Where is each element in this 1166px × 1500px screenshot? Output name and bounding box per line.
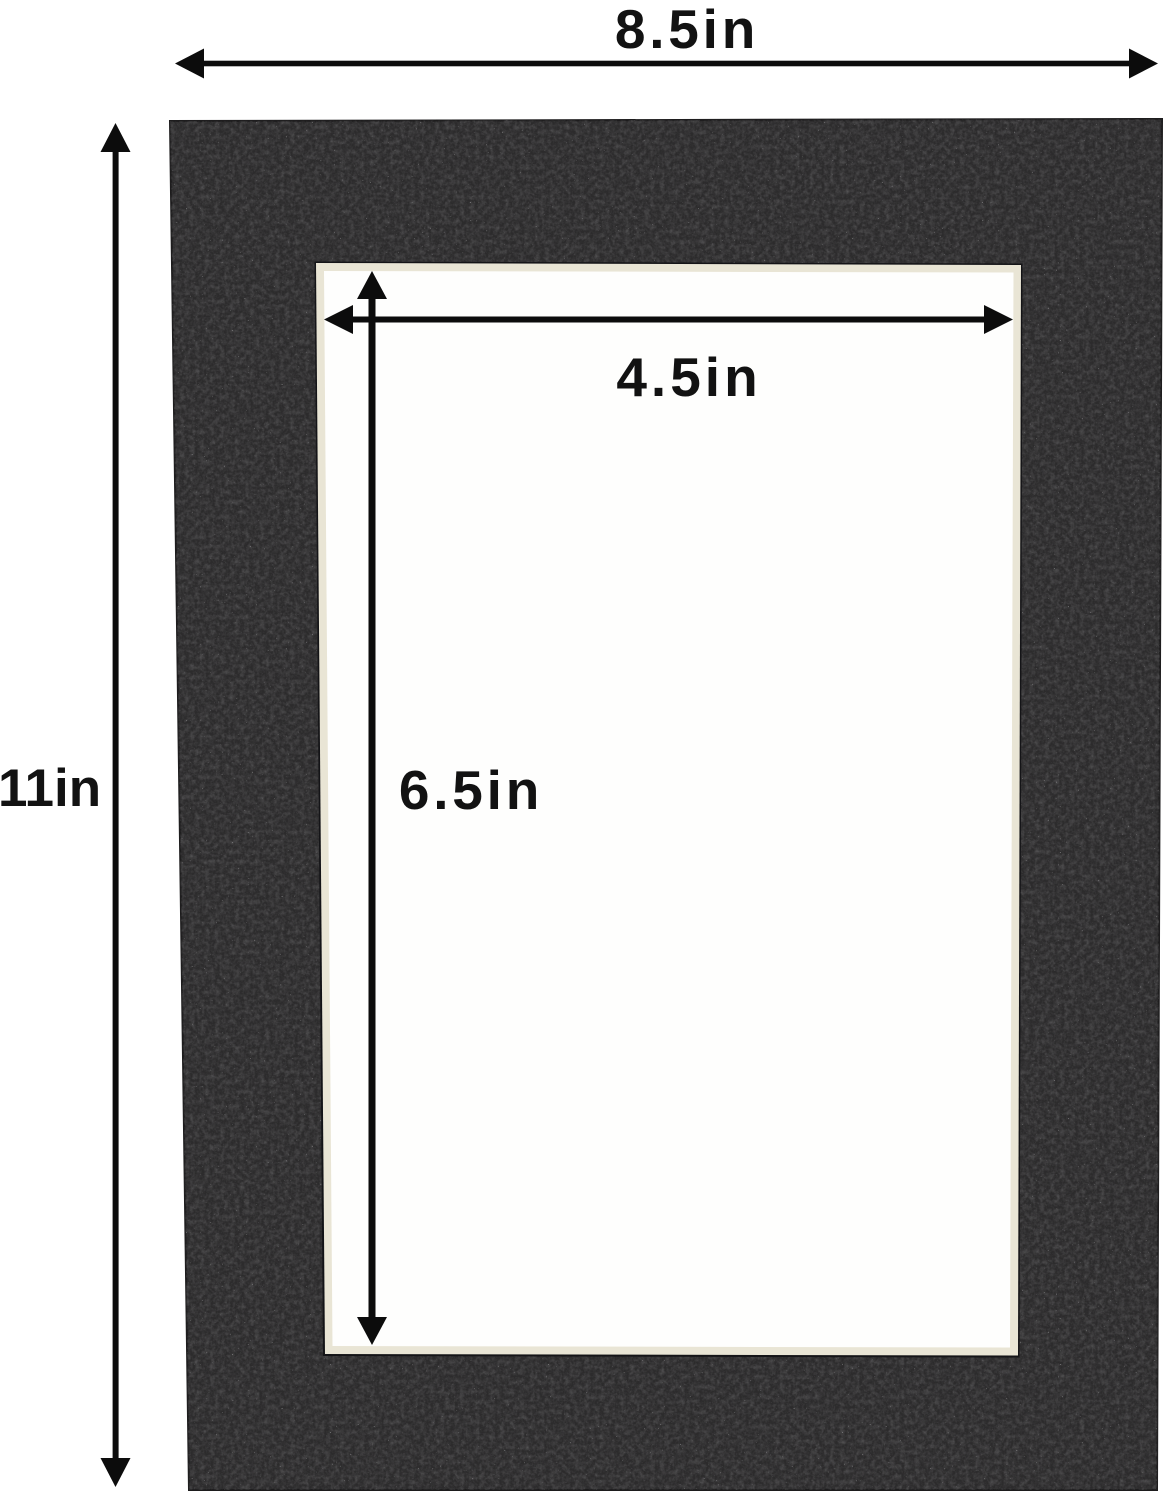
svg-text:6.5in: 6.5in — [399, 759, 543, 821]
svg-text:11in: 11in — [0, 759, 101, 818]
svg-text:8.5in: 8.5in — [615, 0, 759, 60]
svg-text:4.5in: 4.5in — [616, 346, 761, 408]
